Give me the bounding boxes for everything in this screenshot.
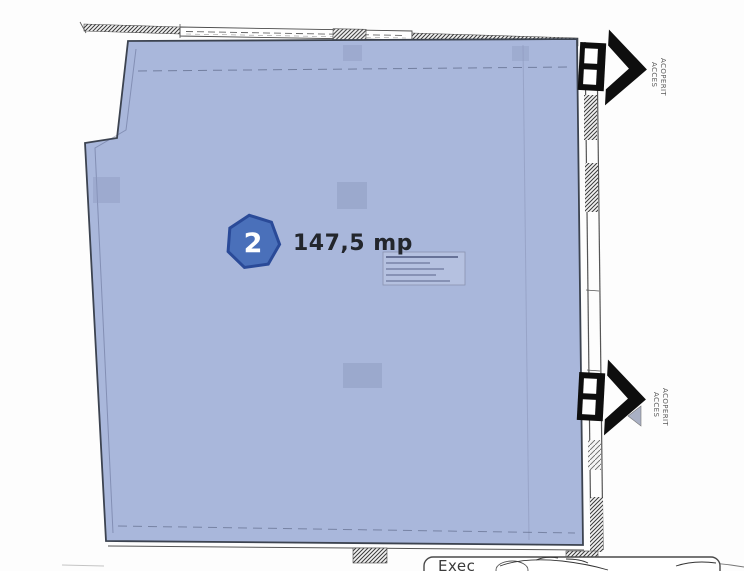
room-shape[interactable] <box>85 39 583 545</box>
area-label: 147,5 mp <box>293 231 413 256</box>
arrow-head-icon <box>604 359 648 437</box>
column-block <box>343 45 362 61</box>
column-block <box>337 182 367 209</box>
column-block <box>93 177 120 203</box>
floor-plan-viewer: ACCES ACOPERIT ACCES ACOPERIT 2 147,5 mp… <box>0 0 744 571</box>
column-block <box>512 46 529 61</box>
right-wall-band <box>584 42 603 552</box>
arrow-head-icon <box>605 29 649 107</box>
access-label-line2: ACOPERIT <box>659 58 667 96</box>
access-label-line1: ACCES <box>650 62 658 87</box>
room-area-polygon <box>85 39 583 545</box>
room-schedule-box <box>383 252 465 285</box>
access-arrow-bottom <box>576 358 648 437</box>
access-label-line2: ACOPERIT <box>661 388 669 426</box>
stamp-text: Exec <box>438 557 475 571</box>
access-label-top: ACCES ACOPERIT <box>650 58 667 96</box>
floor-plan-svg: ACCES ACOPERIT ACCES ACOPERIT 2 147,5 mp… <box>0 0 744 571</box>
access-label-line1: ACCES <box>652 392 660 417</box>
unit-badge-number: 2 <box>244 228 263 259</box>
bottom-pier <box>353 548 387 563</box>
column-block <box>343 363 382 388</box>
stamp-box: Exec <box>424 557 744 571</box>
